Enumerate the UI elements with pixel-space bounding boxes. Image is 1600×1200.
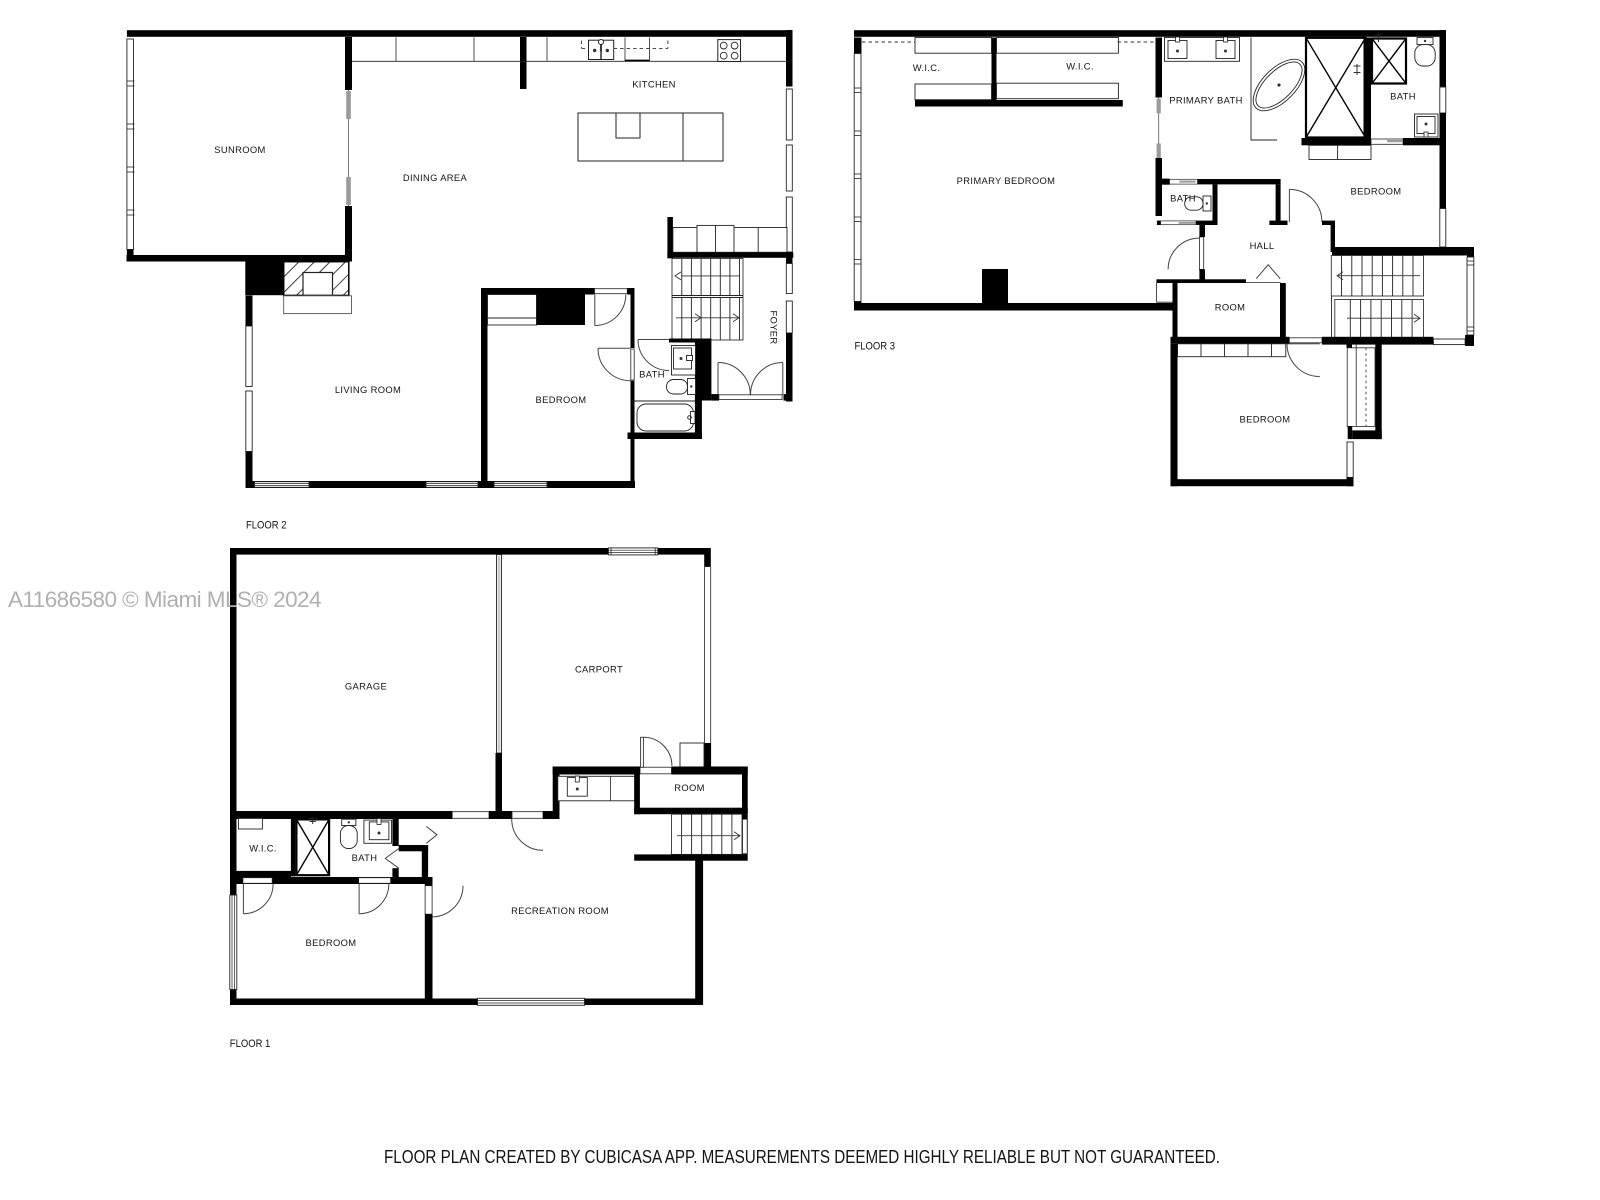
svg-text:BEDROOM: BEDROOM xyxy=(1351,186,1402,197)
svg-text:PRIMARY BATH: PRIMARY BATH xyxy=(1169,95,1243,106)
svg-text:FLOOR 3: FLOOR 3 xyxy=(855,341,896,353)
svg-text:ROOM: ROOM xyxy=(674,782,705,793)
svg-text:LIVING ROOM: LIVING ROOM xyxy=(335,384,401,395)
svg-text:FLOOR 2: FLOOR 2 xyxy=(246,520,287,532)
svg-text:GARAGE: GARAGE xyxy=(345,681,387,692)
svg-text:SUNROOM: SUNROOM xyxy=(214,144,265,155)
svg-text:BATH: BATH xyxy=(1170,193,1196,204)
svg-text:CARPORT: CARPORT xyxy=(575,664,623,675)
svg-text:BEDROOM: BEDROOM xyxy=(1240,414,1291,425)
svg-text:HALL: HALL xyxy=(1250,240,1275,251)
svg-text:A11686580 © Miami MLS® 2024: A11686580 © Miami MLS® 2024 xyxy=(8,587,322,612)
svg-text:W.I.C.: W.I.C. xyxy=(913,62,941,73)
svg-text:BEDROOM: BEDROOM xyxy=(306,937,357,948)
svg-text:PRIMARY BEDROOM: PRIMARY BEDROOM xyxy=(957,175,1056,186)
svg-text:W.I.C.: W.I.C. xyxy=(249,843,277,854)
svg-text:FLOOR 1: FLOOR 1 xyxy=(230,1038,270,1050)
svg-text:ROOM: ROOM xyxy=(1215,302,1246,313)
svg-text:BATH: BATH xyxy=(1390,91,1416,102)
svg-text:FLOOR PLAN CREATED BY CUBICASA: FLOOR PLAN CREATED BY CUBICASA APP. MEAS… xyxy=(384,1147,1220,1167)
svg-text:FOYER: FOYER xyxy=(769,310,780,344)
svg-text:BATH: BATH xyxy=(352,852,378,863)
svg-text:KITCHEN: KITCHEN xyxy=(632,78,676,89)
svg-text:BATH: BATH xyxy=(639,369,665,380)
svg-text:W.I.C.: W.I.C. xyxy=(1066,61,1094,72)
svg-text:RECREATION ROOM: RECREATION ROOM xyxy=(511,905,609,916)
svg-text:DINING AREA: DINING AREA xyxy=(403,172,468,183)
svg-text:BEDROOM: BEDROOM xyxy=(536,394,587,405)
